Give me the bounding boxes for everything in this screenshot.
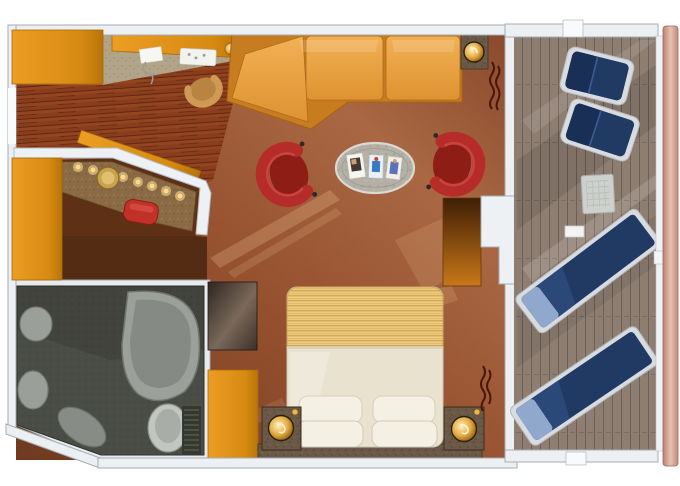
pillow — [299, 396, 362, 423]
lamp-knob — [474, 409, 480, 415]
magazine — [346, 153, 365, 179]
nightstand-right — [444, 407, 484, 450]
vanity-light — [133, 177, 143, 187]
desk-tray — [180, 48, 217, 66]
deck-step-pad — [565, 226, 584, 237]
pillow — [373, 396, 435, 423]
basin-left-2 — [18, 371, 48, 409]
vanity-light — [88, 165, 98, 175]
vanity-light — [161, 186, 171, 196]
nightstand-left — [262, 407, 301, 450]
vanity-mirror-glass — [102, 172, 115, 185]
vanity-light — [147, 181, 157, 191]
nook-floor-shadow — [62, 236, 207, 281]
entry-door-gap — [8, 88, 16, 144]
wardrobe-entry — [12, 30, 103, 84]
vanity-light — [73, 162, 83, 172]
wardrobe-vanity — [12, 158, 62, 280]
magazine — [369, 155, 384, 178]
sofa-highlight — [392, 40, 455, 52]
desk-papers — [139, 47, 163, 64]
lamp-knob — [292, 409, 298, 415]
balcony-side-table — [581, 174, 615, 214]
balcony-partition-tab-bottom — [566, 452, 586, 465]
balcony-partition-tab-top — [563, 20, 583, 37]
table-top-mesh — [581, 174, 615, 214]
magazine-photo — [389, 162, 398, 175]
pillow — [297, 421, 363, 447]
bathroom — [12, 280, 210, 461]
basin-left-1 — [20, 307, 52, 341]
balcony — [505, 20, 678, 466]
bathtub-basin — [130, 300, 191, 388]
vanity-light — [175, 191, 185, 201]
magazine-photo — [372, 161, 380, 172]
toilet-bowl — [155, 409, 181, 443]
magazine — [386, 156, 403, 180]
wall-bottom — [98, 458, 517, 468]
paper — [139, 47, 163, 64]
pillow — [372, 421, 437, 447]
bedside-lamp — [269, 416, 294, 441]
magazine-face — [351, 159, 357, 165]
balcony-door-panel — [443, 198, 481, 286]
tray — [180, 48, 217, 66]
bedside-lamp — [452, 417, 477, 442]
coffee-table — [336, 143, 414, 193]
sofa-highlight — [300, 40, 378, 52]
wardrobe-bedroom — [208, 370, 258, 460]
bed-foot-blanket — [287, 287, 443, 346]
floorplan-canvas — [0, 0, 680, 486]
ship-hull-edge — [663, 26, 678, 466]
media-cabinet — [208, 282, 257, 350]
corner-lamp — [464, 42, 484, 62]
suite-floorplan — [0, 0, 680, 486]
